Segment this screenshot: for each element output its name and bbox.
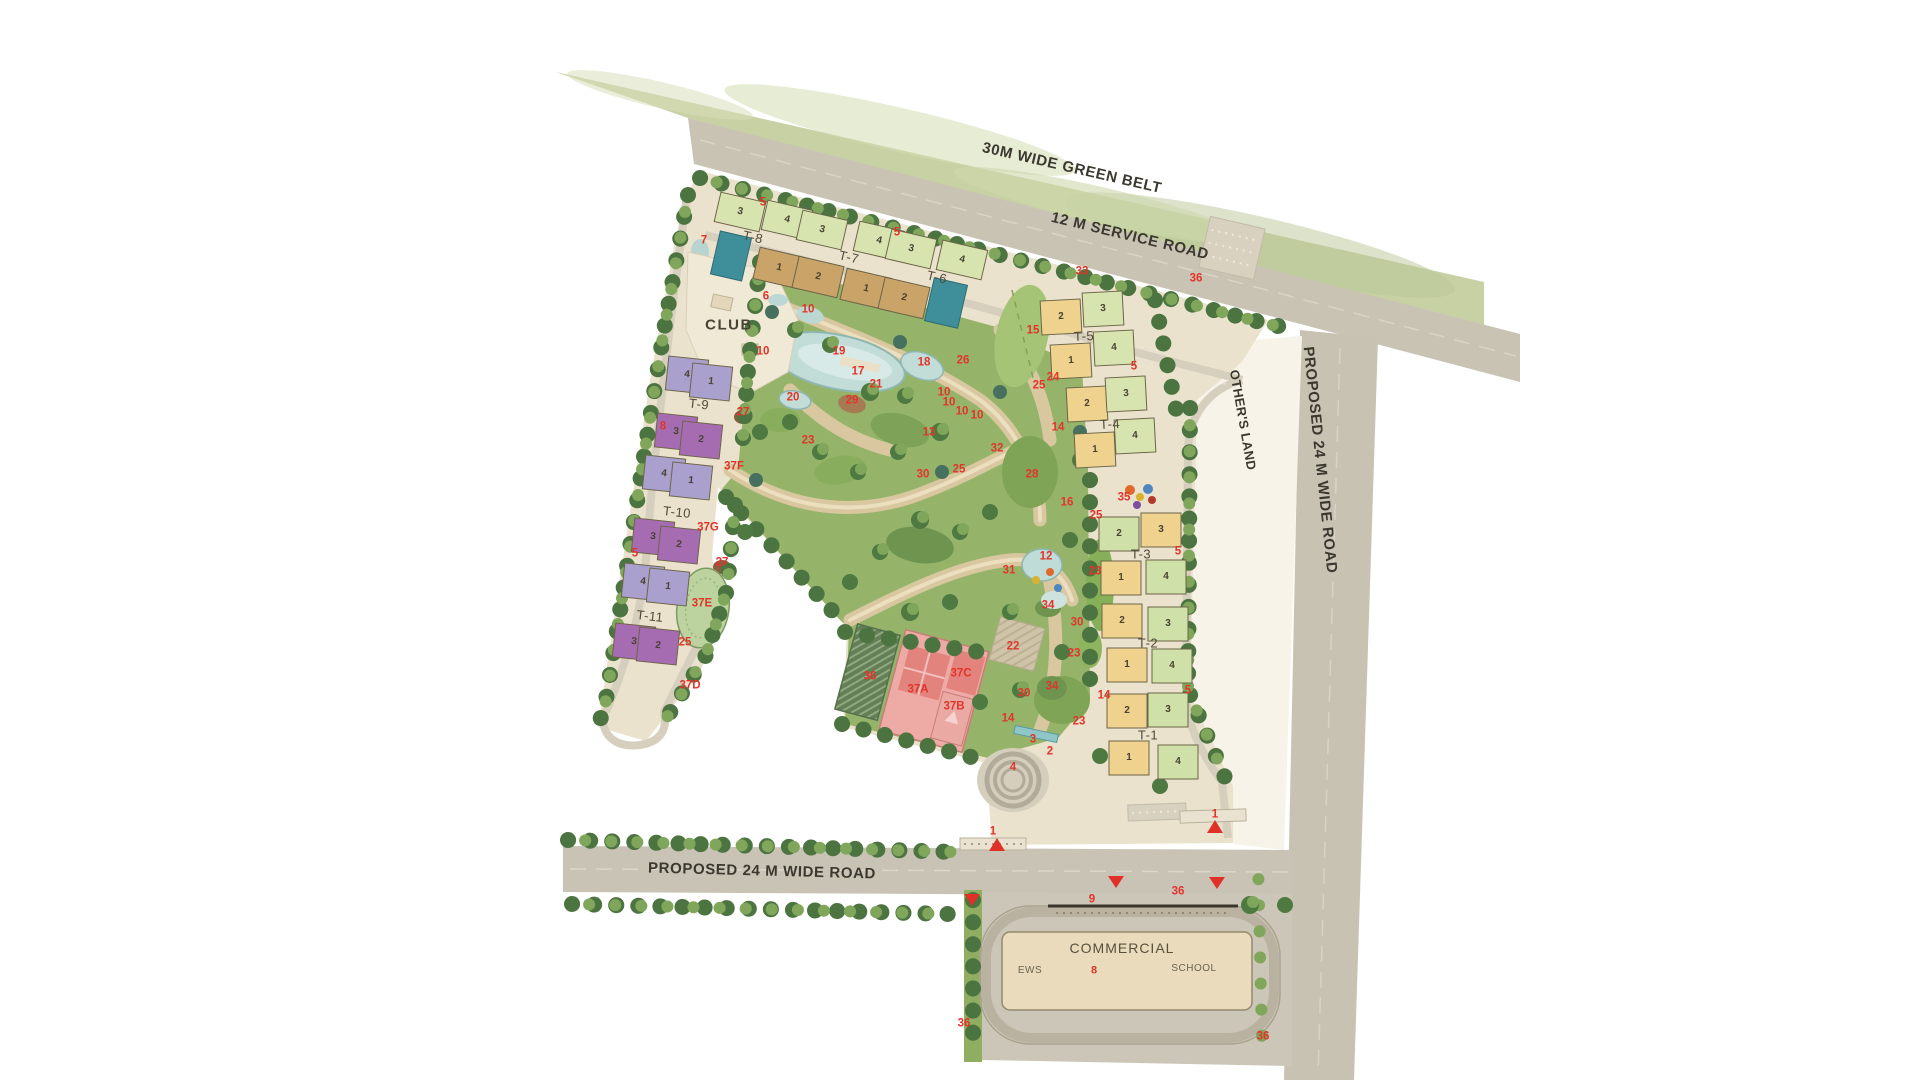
commercial-block: [964, 890, 1280, 1062]
ramp-4: [977, 748, 1049, 812]
site-plan-drawing: [0, 0, 1920, 1080]
site-plan-map: 30M WIDE GREEN BELT12 M SERVICE ROADOTHE…: [0, 0, 1920, 1080]
